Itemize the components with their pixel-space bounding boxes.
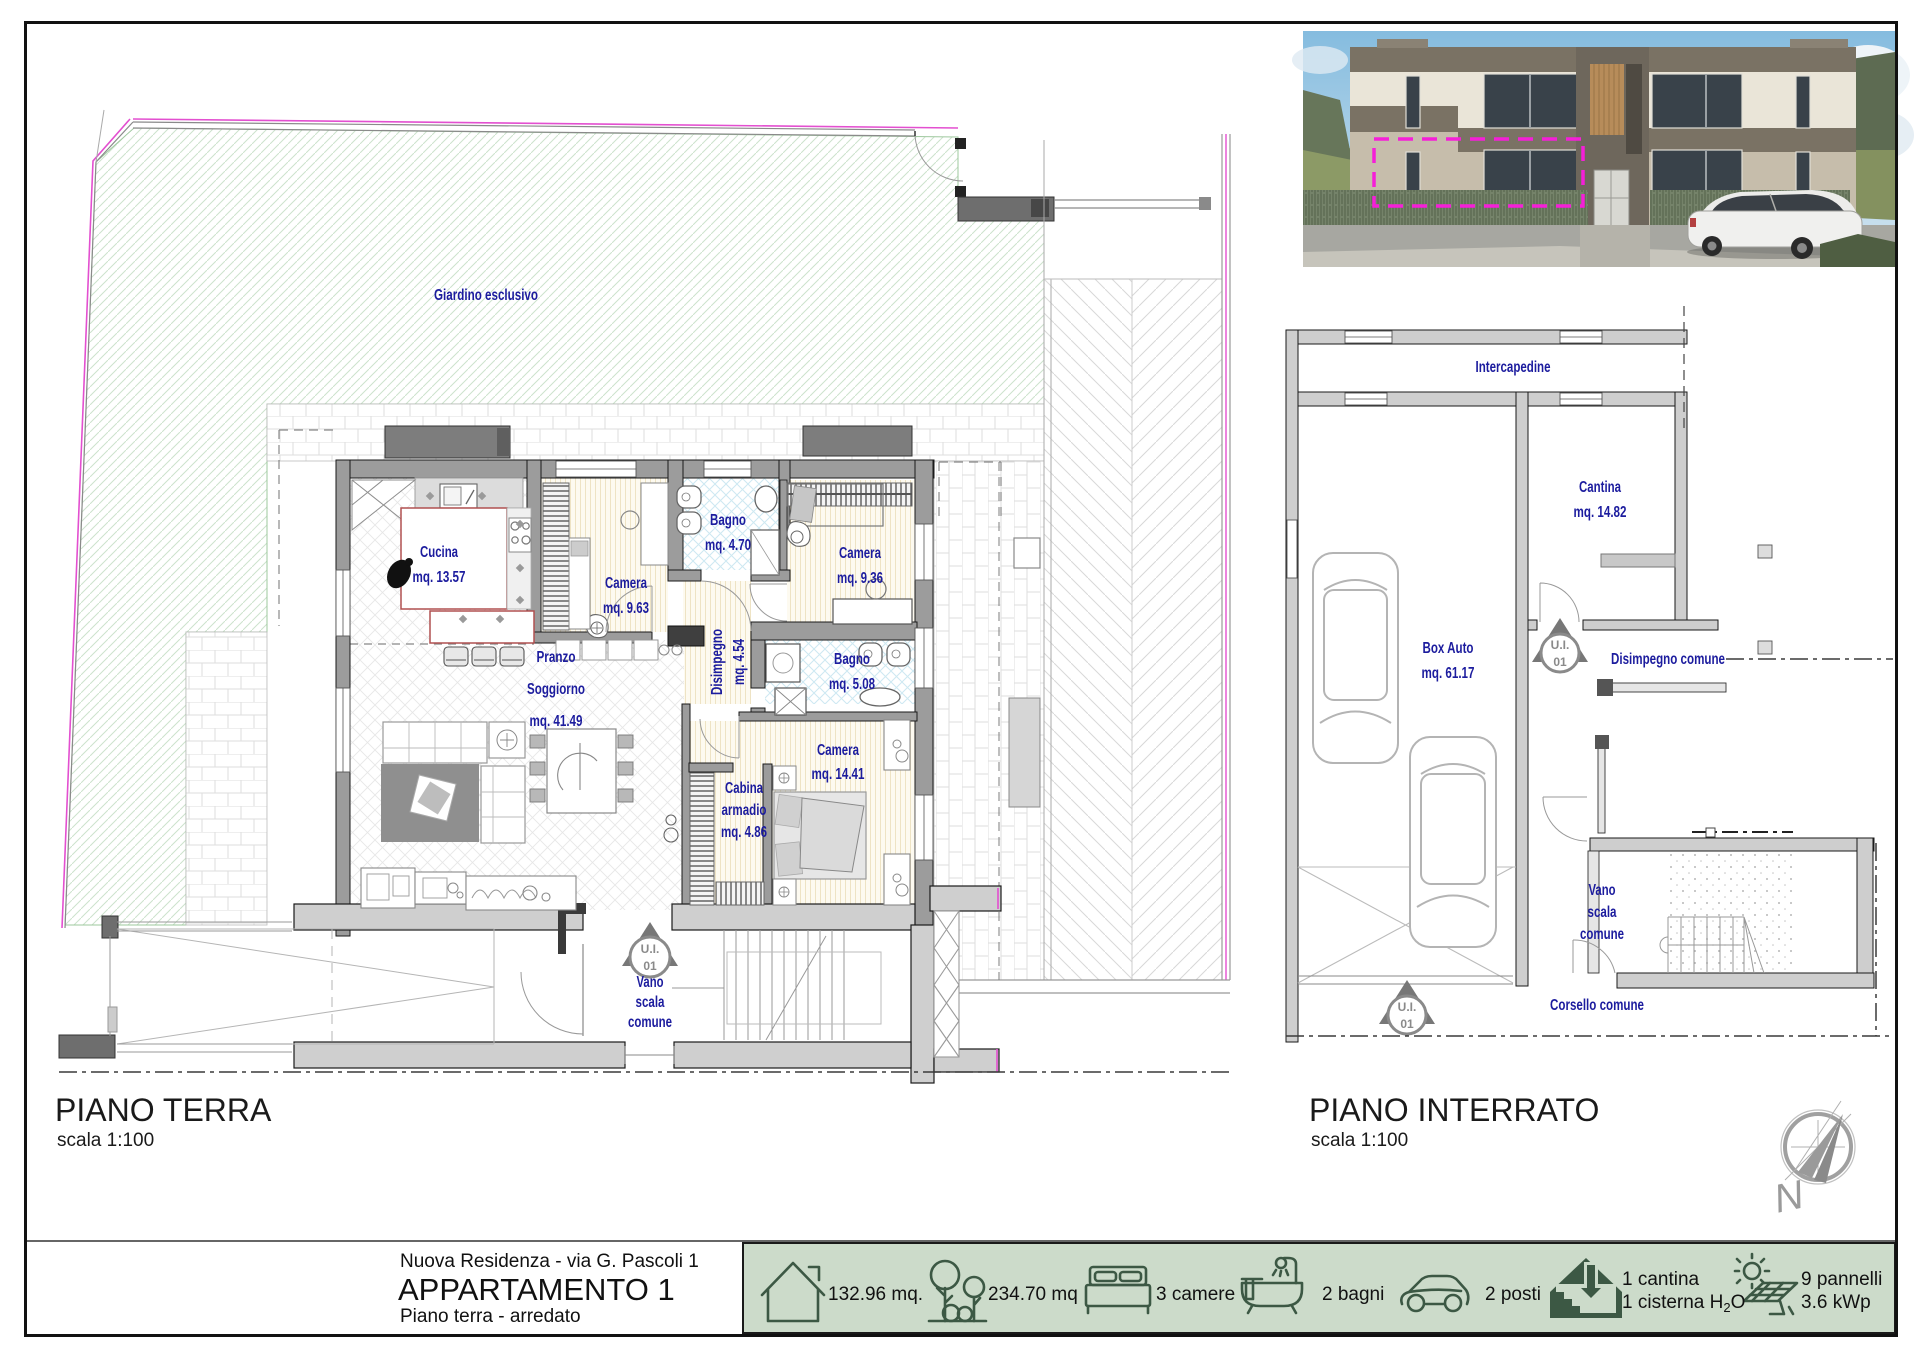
svg-text:Vano: Vano xyxy=(637,974,664,991)
svg-text:Intercapedine: Intercapedine xyxy=(1476,359,1551,376)
svg-text:2 posti: 2 posti xyxy=(1485,1284,1541,1305)
svg-text:Box Auto: Box Auto xyxy=(1423,640,1474,657)
svg-text:132.96 mq.: 132.96 mq. xyxy=(828,1284,923,1305)
svg-text:Bagno: Bagno xyxy=(710,512,746,529)
svg-text:234.70 mq: 234.70 mq xyxy=(988,1284,1078,1305)
svg-text:Vano: Vano xyxy=(1589,882,1616,899)
svg-text:U.I.: U.I. xyxy=(641,942,660,956)
svg-text:Cantina: Cantina xyxy=(1579,479,1621,496)
svg-text:PIANO INTERRATO: PIANO INTERRATO xyxy=(1309,1092,1599,1128)
svg-text:01: 01 xyxy=(643,959,657,973)
svg-text:Cabina: Cabina xyxy=(725,780,763,797)
svg-text:PIANO TERRA: PIANO TERRA xyxy=(55,1092,272,1128)
svg-text:mq. 4.86: mq. 4.86 xyxy=(721,824,767,841)
svg-text:comune: comune xyxy=(628,1014,672,1031)
svg-text:3.6 kWp: 3.6 kWp xyxy=(1801,1292,1871,1313)
svg-text:Nuova Residenza - via G. Pasco: Nuova Residenza - via G. Pascoli 1 xyxy=(400,1251,699,1272)
svg-text:Camera: Camera xyxy=(839,545,881,562)
svg-text:01: 01 xyxy=(1553,655,1567,669)
svg-text:scala: scala xyxy=(636,994,665,1011)
svg-text:Corsello comune: Corsello comune xyxy=(1550,997,1644,1014)
svg-text:3 camere: 3 camere xyxy=(1156,1284,1235,1305)
svg-text:2 bagni: 2 bagni xyxy=(1322,1284,1384,1305)
svg-text:9 pannelli: 9 pannelli xyxy=(1801,1269,1882,1290)
svg-text:scala 1:100: scala 1:100 xyxy=(57,1130,154,1151)
svg-text:APPARTAMENTO 1: APPARTAMENTO 1 xyxy=(398,1272,675,1307)
svg-text:Camera: Camera xyxy=(605,575,647,592)
svg-text:Camera: Camera xyxy=(817,742,859,759)
svg-text:U.I.: U.I. xyxy=(1551,638,1570,652)
svg-text:armadio: armadio xyxy=(722,802,767,819)
svg-text:mq. 13.57: mq. 13.57 xyxy=(413,569,466,586)
svg-text:Pranzo: Pranzo xyxy=(537,649,576,666)
svg-text:mq. 4.54: mq. 4.54 xyxy=(731,639,748,685)
svg-text:scala: scala xyxy=(1588,904,1617,921)
svg-text:Giardino esclusivo: Giardino esclusivo xyxy=(434,287,538,304)
svg-text:1 cantina: 1 cantina xyxy=(1622,1269,1700,1290)
svg-text:Bagno: Bagno xyxy=(834,651,870,668)
svg-text:scala 1:100: scala 1:100 xyxy=(1311,1130,1408,1151)
svg-text:mq. 14.82: mq. 14.82 xyxy=(1574,504,1627,521)
svg-text:01: 01 xyxy=(1400,1017,1414,1031)
svg-text:Piano terra - arredato: Piano terra - arredato xyxy=(400,1306,581,1327)
svg-text:mq. 9.63: mq. 9.63 xyxy=(603,600,649,617)
svg-text:Disimpegno comune: Disimpegno comune xyxy=(1611,651,1725,668)
svg-text:mq. 41.49: mq. 41.49 xyxy=(530,713,583,730)
svg-text:Cucina: Cucina xyxy=(420,544,458,561)
svg-text:mq. 9.36: mq. 9.36 xyxy=(837,570,883,587)
svg-text:comune: comune xyxy=(1580,926,1624,943)
svg-text:Disimpegno: Disimpegno xyxy=(709,629,726,695)
svg-text:mq. 4.70: mq. 4.70 xyxy=(705,537,751,554)
svg-text:Soggiorno: Soggiorno xyxy=(527,681,585,698)
svg-text:mq. 14.41: mq. 14.41 xyxy=(812,766,865,783)
svg-text:U.I.: U.I. xyxy=(1398,1000,1417,1014)
svg-text:mq. 61.17: mq. 61.17 xyxy=(1422,665,1475,682)
svg-text:mq. 5.08: mq. 5.08 xyxy=(829,676,875,693)
